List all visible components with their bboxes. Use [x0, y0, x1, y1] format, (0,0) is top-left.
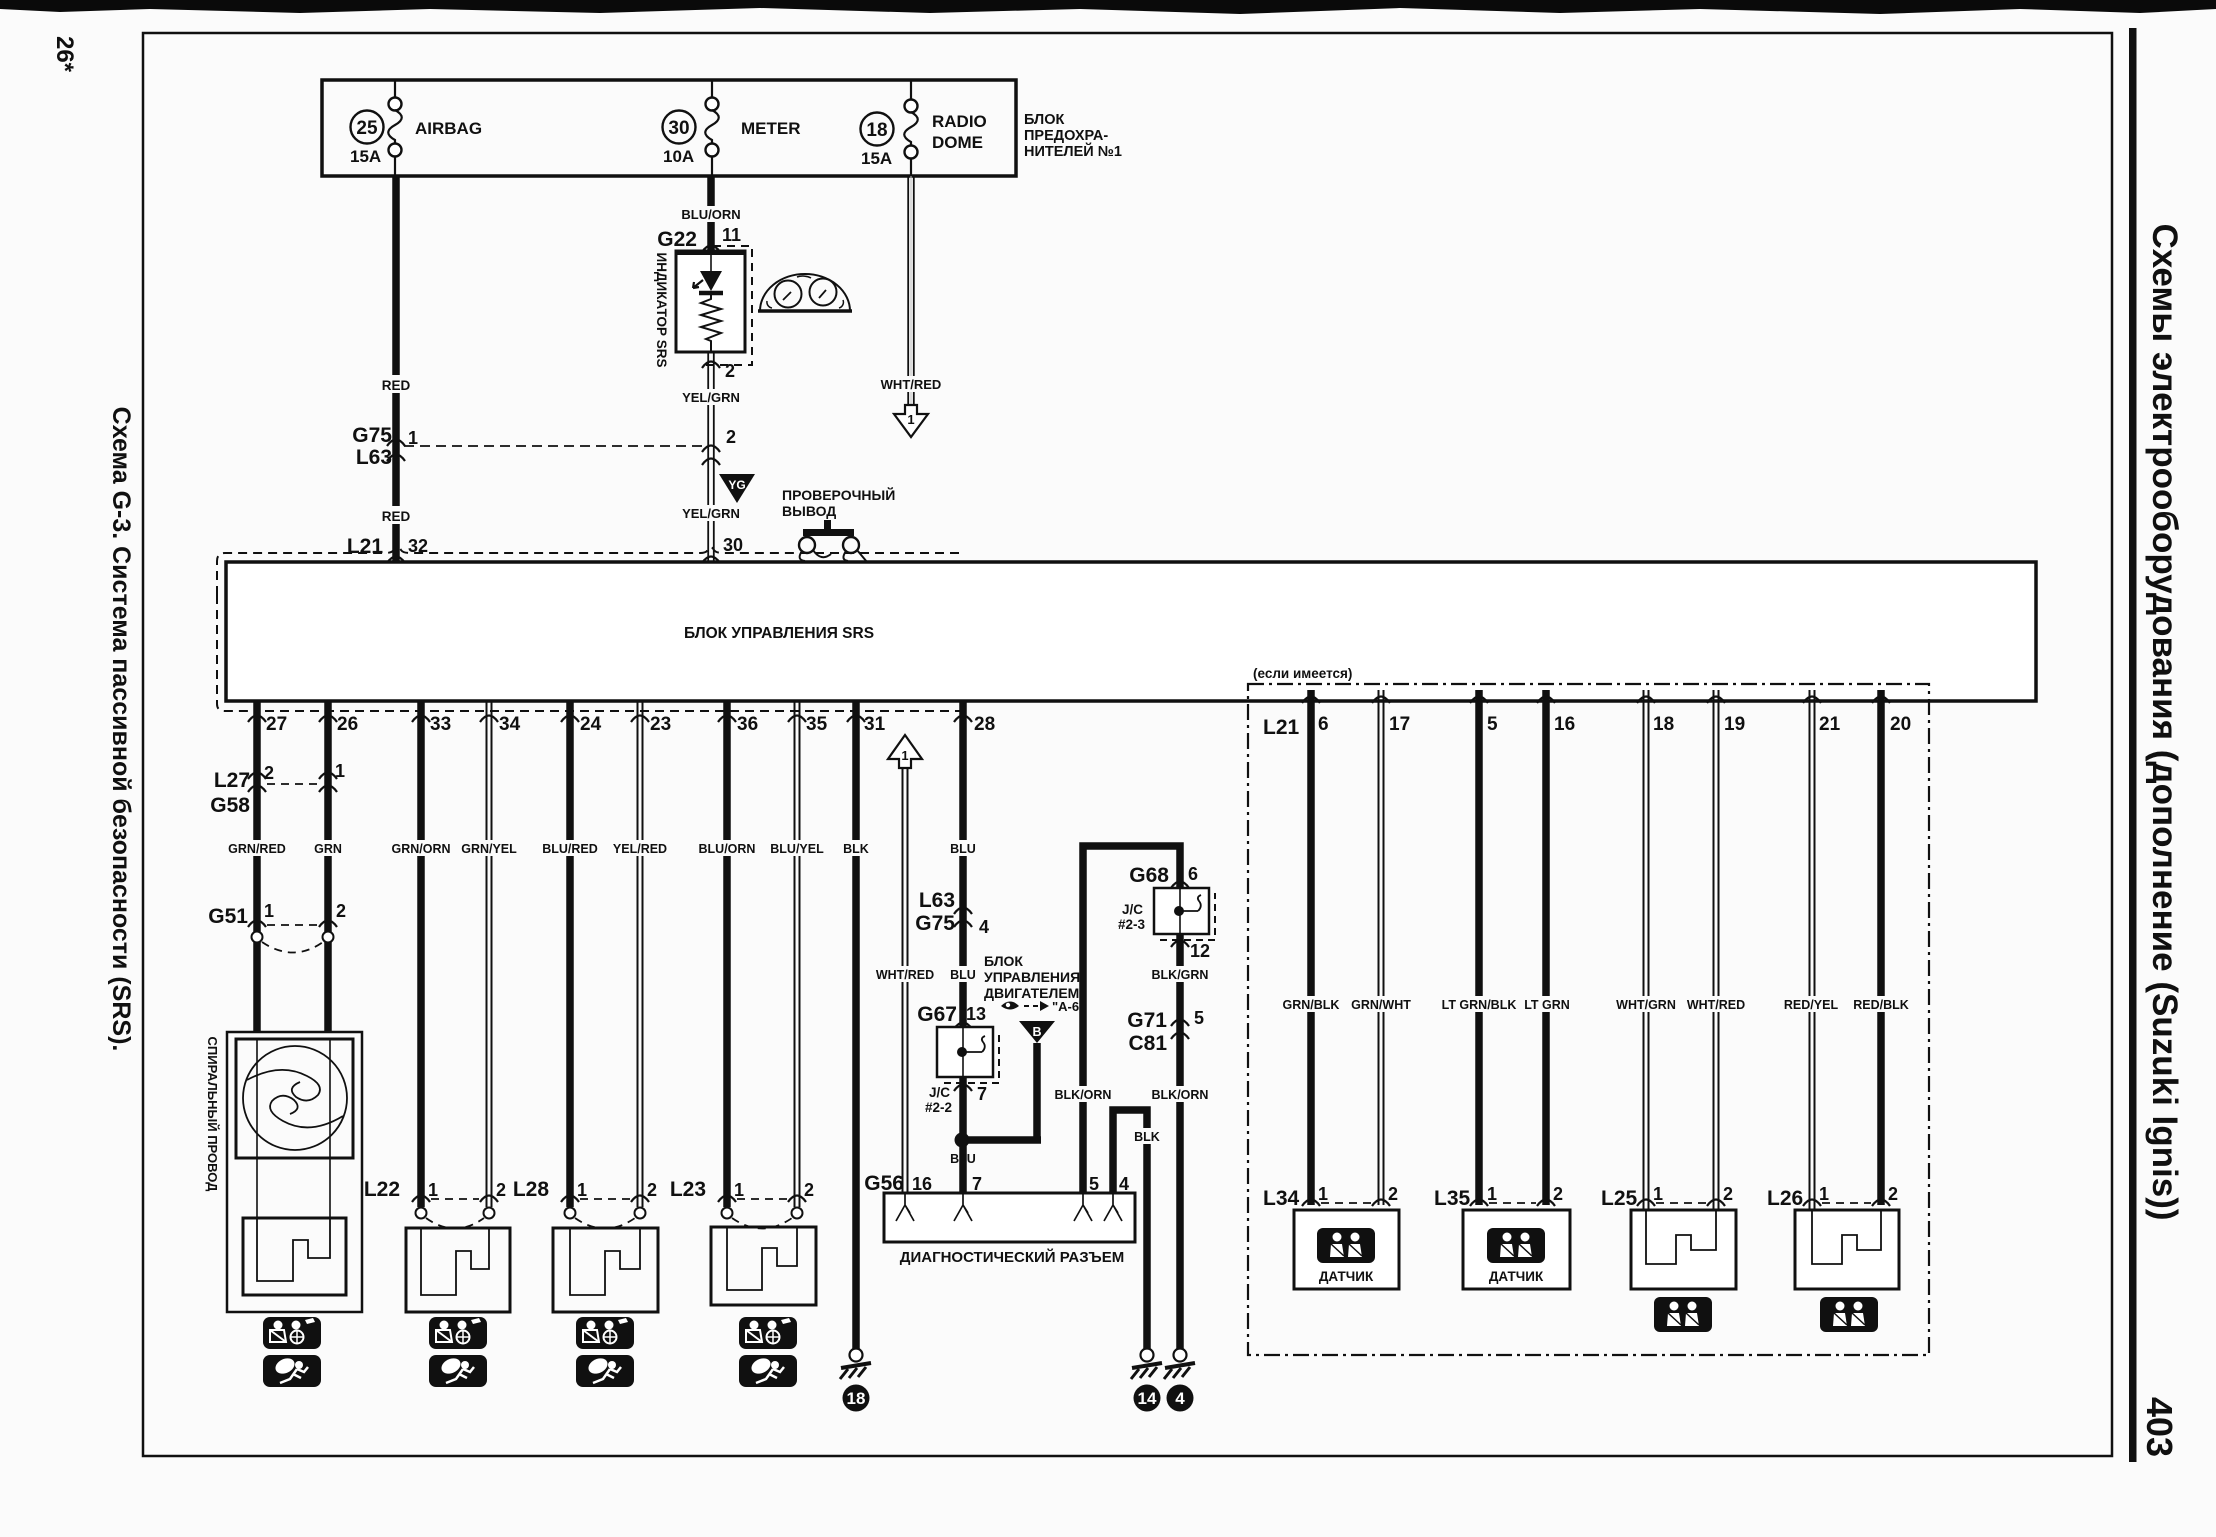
svg-text:L22: L22: [364, 1178, 400, 1201]
svg-text:2: 2: [1388, 1184, 1398, 1204]
svg-text:33: 33: [430, 714, 451, 735]
svg-text:BLU: BLU: [950, 842, 976, 856]
svg-text:BLK/ORN: BLK/ORN: [1055, 1088, 1112, 1102]
svg-text:BLU/ORN: BLU/ORN: [681, 207, 740, 222]
svg-text:1: 1: [907, 412, 914, 427]
svg-text:RED/YEL: RED/YEL: [1784, 998, 1839, 1012]
svg-text:BLK/GRN: BLK/GRN: [1152, 968, 1209, 982]
svg-text:35: 35: [806, 714, 828, 735]
svg-text:ДАТЧИК: ДАТЧИК: [1489, 1269, 1544, 1284]
svg-text:L26: L26: [1767, 1187, 1803, 1210]
svg-text:L27: L27: [214, 769, 250, 792]
svg-text:L28: L28: [513, 1178, 550, 1201]
svg-text:2: 2: [726, 427, 736, 447]
svg-text:GRN/WHT: GRN/WHT: [1351, 998, 1411, 1012]
svg-text:26*: 26*: [51, 36, 78, 73]
svg-text:1: 1: [335, 761, 345, 781]
svg-text:1: 1: [264, 901, 274, 921]
svg-text:11: 11: [722, 225, 741, 245]
svg-text:СПИРАЛЬНЫЙ ПРОВОД: СПИРАЛЬНЫЙ ПРОВОД: [205, 1037, 220, 1193]
svg-text:2: 2: [1888, 1184, 1898, 1204]
svg-text:WHT/RED: WHT/RED: [1687, 998, 1745, 1012]
svg-text:4: 4: [1175, 1389, 1185, 1408]
svg-text:ДИАГНОСТИЧЕСКИЙ РАЗЪЕМ: ДИАГНОСТИЧЕСКИЙ РАЗЪЕМ: [900, 1248, 1124, 1266]
svg-text:7: 7: [977, 1084, 987, 1104]
svg-text:GRN: GRN: [314, 842, 342, 856]
svg-text:7: 7: [972, 1174, 982, 1194]
svg-text:15A: 15A: [861, 149, 892, 168]
svg-text:18: 18: [847, 1389, 866, 1408]
svg-text:YEL/GRN: YEL/GRN: [682, 390, 740, 405]
svg-text:GRN/ORN: GRN/ORN: [391, 842, 450, 856]
svg-text:24: 24: [580, 714, 602, 735]
svg-text:GRN/RED: GRN/RED: [228, 842, 286, 856]
svg-text:28: 28: [974, 714, 995, 735]
svg-text:1: 1: [1487, 1184, 1497, 1204]
svg-text:4: 4: [1119, 1174, 1129, 1194]
svg-text:J/C: J/C: [929, 1085, 950, 1100]
svg-text:(если имеется): (если имеется): [1253, 666, 1352, 681]
svg-text:LT GRN: LT GRN: [1524, 998, 1570, 1012]
svg-text:403: 403: [2139, 1397, 2180, 1457]
svg-text:15A: 15A: [350, 147, 381, 166]
svg-text:6: 6: [1188, 864, 1198, 884]
svg-text:YEL/RED: YEL/RED: [613, 842, 667, 856]
svg-text:GRN/YEL: GRN/YEL: [461, 842, 517, 856]
svg-text:21: 21: [1819, 714, 1841, 735]
svg-text:14: 14: [1138, 1389, 1157, 1408]
svg-text:BLK: BLK: [1134, 1130, 1160, 1144]
svg-text:#2-3: #2-3: [1118, 917, 1146, 932]
svg-text:ПРЕДОХРА-: ПРЕДОХРА-: [1024, 128, 1108, 144]
svg-text:5: 5: [1089, 1174, 1099, 1194]
svg-text:34: 34: [499, 714, 521, 735]
svg-text:G58: G58: [210, 794, 250, 817]
svg-text:YG: YG: [728, 478, 745, 492]
svg-text:18: 18: [1653, 714, 1674, 735]
svg-text:36: 36: [737, 714, 758, 735]
svg-text:ВЫВОД: ВЫВОД: [782, 503, 836, 519]
svg-text:27: 27: [266, 714, 287, 735]
svg-text:5: 5: [1487, 714, 1498, 735]
svg-text:2: 2: [725, 361, 735, 381]
svg-text:17: 17: [1389, 714, 1410, 735]
svg-text:DOME: DOME: [932, 133, 983, 152]
svg-text:#2-2: #2-2: [925, 1100, 952, 1115]
svg-text:BLK/ORN: BLK/ORN: [1152, 1088, 1209, 1102]
svg-text:BLK: BLK: [843, 842, 869, 856]
svg-text:Схема G-3. Система пассивной б: Схема G-3. Система пассивной безопасност…: [107, 407, 135, 1052]
svg-text:УПРАВЛЕНИЯ: УПРАВЛЕНИЯ: [984, 969, 1080, 985]
svg-text:1: 1: [577, 1180, 587, 1200]
svg-text:2: 2: [264, 763, 274, 783]
svg-text:20: 20: [1890, 714, 1911, 735]
svg-text:ИНДИКАТОР SRS: ИНДИКАТОР SRS: [654, 252, 669, 367]
svg-text:C81: C81: [1128, 1032, 1167, 1055]
svg-text:25: 25: [356, 118, 378, 139]
svg-text:RED/BLK: RED/BLK: [1853, 998, 1909, 1012]
svg-text:НИТЕЛЕЙ №1: НИТЕЛЕЙ №1: [1024, 142, 1122, 160]
svg-text:L63: L63: [919, 889, 955, 912]
svg-text:RED: RED: [382, 378, 411, 393]
svg-text:ПРОВЕРОЧНЫЙ: ПРОВЕРОЧНЫЙ: [782, 486, 895, 503]
svg-text:AIRBAG: AIRBAG: [415, 119, 482, 138]
svg-text:2: 2: [804, 1180, 814, 1200]
svg-text:GRN/BLK: GRN/BLK: [1283, 998, 1340, 1012]
svg-text:BLU: BLU: [950, 968, 976, 982]
svg-text:L21: L21: [347, 535, 384, 558]
svg-text:L21: L21: [1263, 716, 1300, 739]
svg-text:16: 16: [1554, 714, 1575, 735]
svg-text:LT GRN/BLK: LT GRN/BLK: [1442, 998, 1517, 1012]
svg-text:G22: G22: [657, 228, 697, 251]
svg-text:31: 31: [864, 714, 886, 735]
svg-text:L63: L63: [356, 446, 392, 469]
svg-text:WHT/GRN: WHT/GRN: [1616, 998, 1676, 1012]
svg-text:METER: METER: [741, 119, 801, 138]
svg-text:1: 1: [1819, 1184, 1829, 1204]
svg-text:G67: G67: [917, 1003, 957, 1026]
svg-text:L35: L35: [1434, 1187, 1471, 1210]
svg-text:G68: G68: [1129, 864, 1169, 887]
svg-text:1: 1: [408, 428, 418, 448]
svg-text:2: 2: [1553, 1184, 1563, 1204]
svg-text:БЛОК: БЛОК: [984, 953, 1023, 969]
svg-text:BLU/YEL: BLU/YEL: [770, 842, 824, 856]
svg-text:J/C: J/C: [1122, 902, 1143, 917]
svg-text:2: 2: [496, 1180, 506, 1200]
svg-text:1: 1: [901, 748, 908, 763]
svg-text:16: 16: [912, 1174, 932, 1194]
svg-text:RADIO: RADIO: [932, 112, 987, 131]
svg-text:BLU/ORN: BLU/ORN: [699, 842, 756, 856]
svg-text:ДАТЧИК: ДАТЧИК: [1319, 1269, 1374, 1284]
svg-text:19: 19: [1724, 714, 1745, 735]
svg-text:30: 30: [668, 118, 689, 139]
svg-text:YEL/GRN: YEL/GRN: [682, 506, 740, 521]
svg-text:L23: L23: [670, 1178, 706, 1201]
svg-text:1: 1: [428, 1180, 438, 1200]
svg-text:БЛОК: БЛОК: [1024, 112, 1065, 128]
svg-text:1: 1: [1318, 1184, 1328, 1204]
svg-text:WHT/RED: WHT/RED: [881, 377, 942, 392]
svg-text:L25: L25: [1601, 1187, 1638, 1210]
svg-text:БЛОК УПРАВЛЕНИЯ SRS: БЛОК УПРАВЛЕНИЯ SRS: [684, 625, 874, 642]
svg-text:WHT/RED: WHT/RED: [876, 968, 934, 982]
svg-text:10A: 10A: [663, 147, 694, 166]
svg-text:2: 2: [336, 901, 346, 921]
svg-text:2: 2: [1723, 1184, 1733, 1204]
svg-text:Схемы электрооборудования (доп: Схемы электрооборудования (дополнение (S…: [2145, 223, 2184, 1220]
svg-text:L34: L34: [1263, 1187, 1300, 1210]
svg-text:G71: G71: [1127, 1009, 1167, 1032]
svg-text:6: 6: [1318, 714, 1329, 735]
svg-text:1: 1: [1653, 1184, 1663, 1204]
svg-text:12: 12: [1190, 941, 1210, 961]
svg-text:B: B: [1032, 1025, 1041, 1039]
svg-text:5: 5: [1194, 1008, 1204, 1028]
svg-text:18: 18: [866, 120, 887, 141]
svg-text:RED: RED: [382, 509, 411, 524]
svg-text:G75: G75: [352, 424, 392, 447]
svg-text:BLU/RED: BLU/RED: [542, 842, 598, 856]
svg-text:4: 4: [979, 917, 989, 937]
svg-text:26: 26: [337, 714, 358, 735]
svg-text:G51: G51: [208, 905, 248, 928]
svg-text:2: 2: [647, 1180, 657, 1200]
svg-text:1: 1: [734, 1180, 744, 1200]
svg-text:G75: G75: [915, 912, 955, 935]
svg-text:13: 13: [966, 1004, 986, 1024]
svg-text:23: 23: [650, 714, 671, 735]
